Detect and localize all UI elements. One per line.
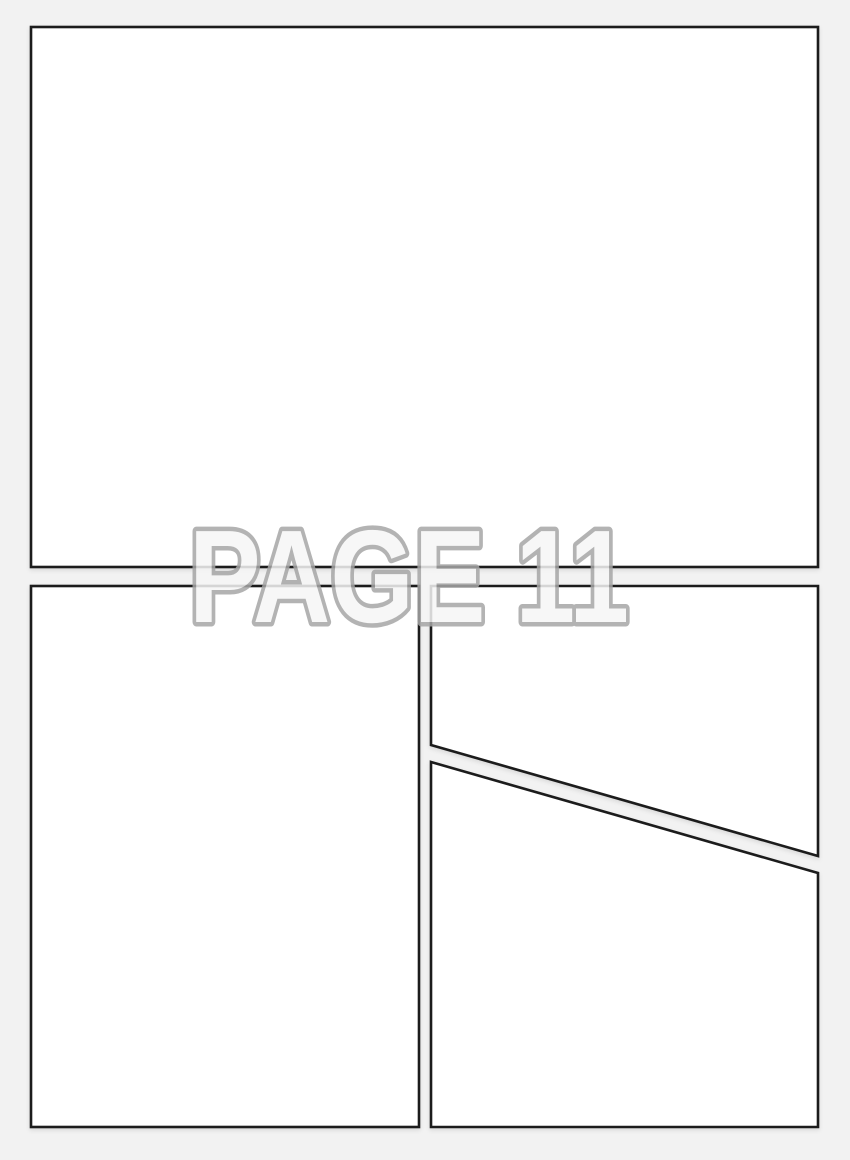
panel-top xyxy=(31,27,818,567)
comic-page-template: PAGE 11 xyxy=(0,0,850,1160)
panel-bottom-left xyxy=(31,586,419,1127)
page-canvas: PAGE 11 xyxy=(0,0,850,1160)
page-number-watermark: PAGE 11 xyxy=(189,503,629,650)
